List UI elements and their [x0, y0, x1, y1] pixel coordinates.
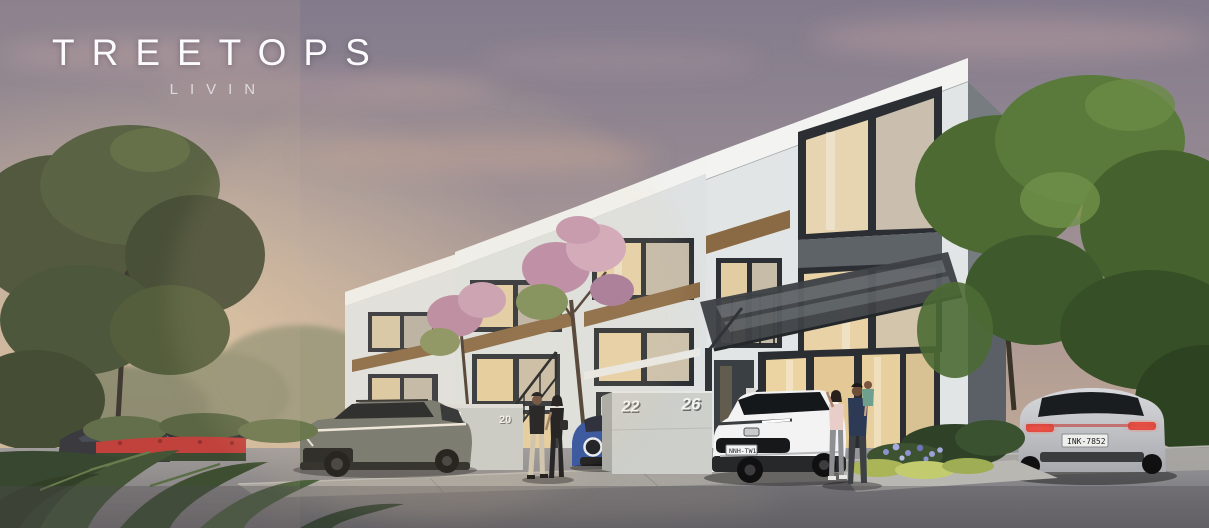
- brand-wordmark: TREETOPS: [44, 32, 387, 74]
- render-canvas: 20 20 22 22 26 26: [0, 0, 1209, 528]
- brand-logo: TREETOPS LIVIN: [44, 32, 387, 98]
- brand-subtitle: LIVIN: [164, 81, 268, 98]
- house-number-26: 26: [681, 395, 701, 414]
- white-suv-plate: NNH-TW12: [729, 447, 760, 455]
- sedan-plate: INK-7852: [1067, 437, 1106, 446]
